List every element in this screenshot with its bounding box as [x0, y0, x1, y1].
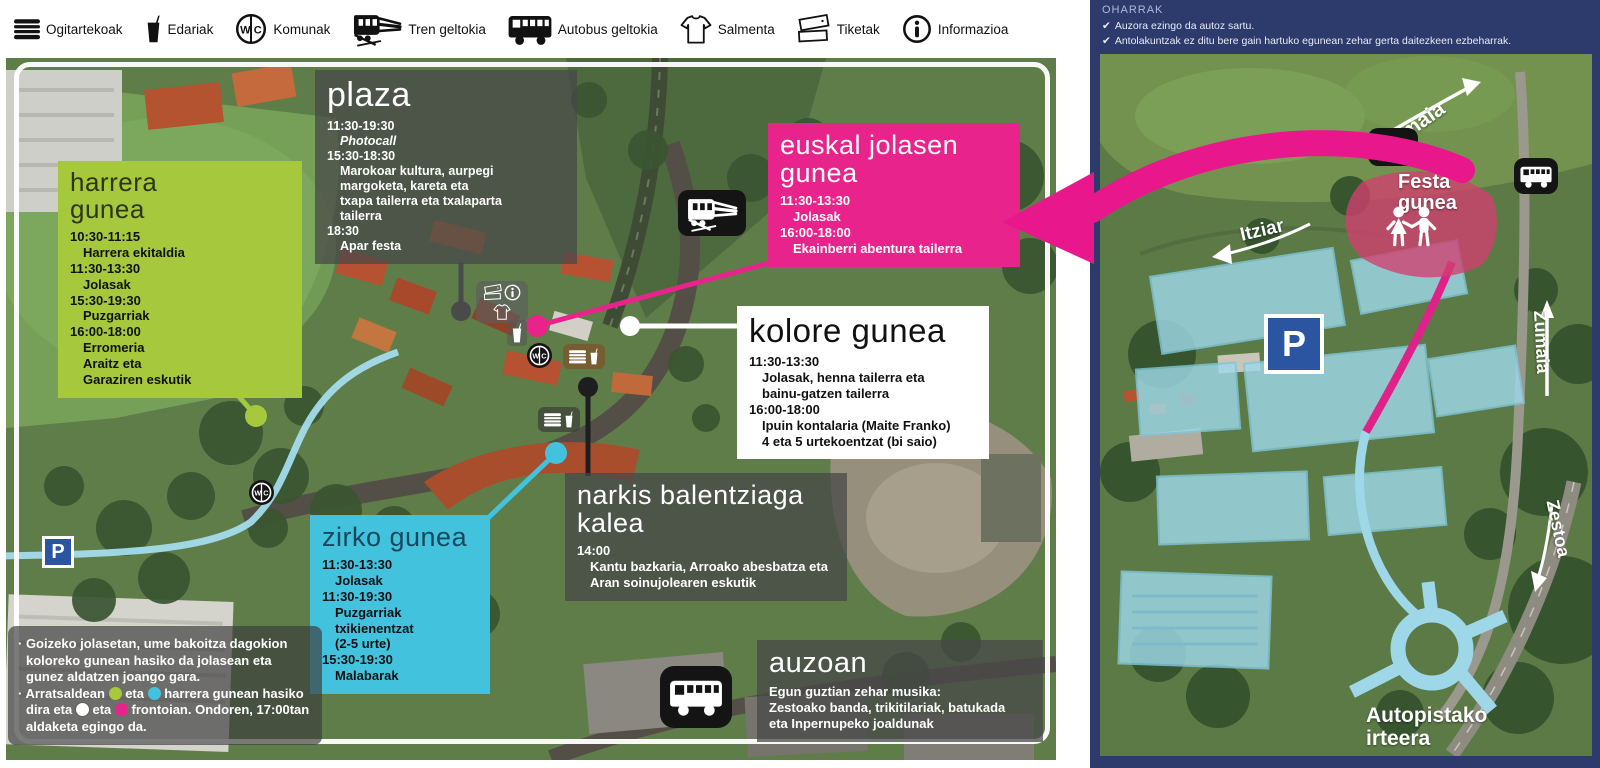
zone-box-narkis-balentziaga-kalea: narkis balentziaga kalea 14:00 Kantu baz… — [565, 473, 847, 601]
wc-icon — [251, 482, 272, 503]
schedule-line: margoketa, kareta eta — [327, 179, 565, 194]
schedule-line: tailerra — [327, 209, 565, 224]
legend-item-sales: Salmenta — [680, 15, 775, 44]
schedule-line: bainu-gatzen tailerra — [749, 386, 977, 402]
zone-box-plaza: plaza 11:30-19:30 Photocall 15:30-18:30 … — [315, 70, 577, 264]
schedule-line: 11:30-19:30 — [327, 119, 565, 134]
legend-label: Ogitartekoak — [46, 22, 123, 37]
schedule-line: Araitz eta — [70, 356, 290, 372]
schedule-line: 15:30-19:30 — [70, 293, 290, 309]
legend-label: Komunak — [273, 22, 330, 37]
schedule-line: Egun guztian zehar musika: — [769, 684, 1031, 700]
schedule-line: Jolasak, henna tailerra eta — [749, 370, 977, 386]
info-icon — [902, 14, 932, 44]
schedule-line: eta Inpernupeko joaldunak — [769, 716, 1031, 732]
schedule-line: Apar festa — [327, 239, 565, 254]
schedule-line: 11:30-13:30 — [749, 354, 977, 370]
schedule-line: 11:30-13:30 — [70, 261, 290, 277]
zone-box-harrera-gunea: harrera gunea 10:30-11:15 Harrera ekital… — [58, 161, 302, 398]
zone-title: harrera gunea — [70, 169, 200, 223]
schedule-line: Kantu bazkaria, Arroako abesbatza eta — [577, 559, 835, 575]
legend-bar: Ogitartekoak Edariak Komunak Tren geltok… — [0, 0, 1090, 58]
services-marker — [476, 281, 528, 323]
note-item: ✔Auzora ezingo da autoz sartu. — [1102, 19, 1596, 34]
schedule-line: 11:30-13:30 — [322, 557, 478, 573]
zone-title: euskal jolasen gunea — [780, 131, 1008, 187]
cyan-zone-dot — [148, 687, 161, 700]
legend-label: Informazioa — [938, 22, 1009, 37]
pink-zone-dot — [115, 703, 128, 716]
white-zone-dot — [76, 703, 89, 716]
schedule-line: Zestoako banda, trikitilariak, batukada — [769, 700, 1031, 716]
schedule-line: txapa tailerra eta txalaparta — [327, 194, 565, 209]
bus-icon — [1520, 164, 1552, 189]
color-zone-notes: · Goizeko jolasetan, ume bakoitza dagoki… — [8, 626, 322, 745]
legend-item-toilets: Komunak — [235, 13, 330, 45]
legend-item-sandwiches: Ogitartekoak — [14, 19, 123, 40]
legend-label: Salmenta — [718, 22, 775, 37]
tickets-icon — [483, 284, 503, 301]
legend-item-train-station: Tren geltokia — [352, 11, 486, 47]
train-icon — [1374, 133, 1412, 161]
schedule-line: (2-5 urte) — [322, 636, 478, 652]
note-morning: · Goizeko jolasetan, ume bakoitza dagoki… — [18, 636, 312, 686]
train-icon — [352, 11, 402, 47]
schedule-line: Malabarak — [322, 668, 478, 684]
toilets-marker — [527, 343, 552, 368]
train-icon — [686, 195, 738, 232]
schedule-line: 15:30-19:30 — [322, 652, 478, 668]
legend-item-drinks: Edariak — [145, 15, 214, 43]
zone-box-zirko-gunea: zirko gunea 11:30-13:30 Jolasak 11:30-19… — [310, 515, 490, 694]
zone-box-auzoan: auzoan Egun guztian zehar musika: Zestoa… — [757, 640, 1043, 742]
sandwich-icon — [14, 19, 40, 40]
children-icon — [1384, 204, 1440, 248]
check-icon: ✔ — [1102, 35, 1111, 47]
drink-icon — [145, 15, 162, 43]
schedule-line: Marokoar kultura, aurpegi — [327, 164, 565, 179]
legend-item-information: Informazioa — [902, 14, 1009, 44]
zone-title: auzoan — [769, 648, 1031, 678]
tshirt-icon — [680, 15, 712, 44]
schedule-line: Erromeria — [70, 340, 290, 356]
food-drinks-marker — [563, 344, 605, 369]
legend-item-bus-station: Autobus geltokia — [508, 13, 658, 46]
schedule-line: Harrera ekitaldia — [70, 245, 290, 261]
notes-title: OHARRAK — [1102, 4, 1596, 16]
sandwich-icon — [544, 413, 561, 427]
festival-map: harrera gunea 10:30-11:15 Harrera ekital… — [6, 58, 1056, 760]
schedule-line: 15:30-18:30 — [327, 149, 565, 164]
sandwich-icon — [569, 350, 586, 364]
schedule-line: 4 eta 5 urtekoentzat (bi saio) — [749, 434, 977, 450]
schedule-line: Garaziren eskutik — [70, 372, 290, 388]
zone-title: plaza — [327, 78, 565, 113]
zone-title: narkis balentziaga kalea — [577, 481, 835, 537]
tickets-icon — [797, 14, 831, 44]
tshirt-icon — [493, 304, 511, 320]
wc-icon — [529, 345, 550, 366]
legend-label: Tiketak — [837, 22, 880, 37]
overview-panel: OHARRAK ✔Auzora ezingo da autoz sartu. ✔… — [1090, 0, 1600, 768]
festival-poster: Ogitartekoak Edariak Komunak Tren geltok… — [0, 0, 1600, 768]
parking-marker: P — [42, 536, 74, 568]
schedule-line: Photocall — [327, 134, 565, 149]
drink-icon — [511, 323, 523, 343]
note-afternoon: · Arratsaldean eta harrera gunean hasiko… — [18, 686, 312, 736]
notes-block: OHARRAK ✔Auzora ezingo da autoz sartu. ✔… — [1102, 4, 1596, 49]
zone-title: zirko gunea — [322, 523, 478, 551]
schedule-line: 16:00-18:00 — [70, 324, 290, 340]
green-zone-dot — [109, 687, 122, 700]
food-drinks-marker — [538, 407, 580, 432]
schedule-line: 16:00-18:00 — [780, 225, 1008, 241]
schedule-line: 10:30-11:15 — [70, 229, 290, 245]
schedule-line: 14:00 — [577, 543, 835, 559]
zone-box-kolore-gunea: kolore gunea 11:30-13:30 Jolasak, henna … — [737, 306, 989, 459]
legend-label: Tren geltokia — [408, 22, 486, 37]
drink-icon — [589, 348, 599, 365]
wc-icon — [235, 13, 267, 45]
train-station-marker — [678, 190, 746, 236]
schedule-line: Jolasak — [322, 573, 478, 589]
toilets-marker — [249, 480, 274, 505]
drink-icon — [564, 411, 574, 428]
schedule-line: Aran soinujolearen eskutik — [577, 575, 835, 591]
schedule-line: Puzgarriak — [70, 308, 290, 324]
schedule-line: 11:30-19:30 — [322, 589, 478, 605]
area-overview-map: Zumaia Itziar Festa gunea Zumaia Zestoa … — [1100, 54, 1592, 756]
drinks-marker — [507, 320, 527, 346]
parking-marker: P — [1264, 314, 1324, 374]
bus-icon — [508, 13, 552, 46]
legend-label: Autobus geltokia — [558, 22, 658, 37]
bus-icon — [669, 677, 723, 717]
legend-label: Edariak — [168, 22, 214, 37]
info-icon — [504, 284, 521, 301]
note-item: ✔Antolakuntzak ez ditu bere gain hartuko… — [1102, 34, 1596, 49]
zone-title: kolore gunea — [749, 314, 977, 348]
schedule-line: 11:30-13:30 — [780, 193, 1008, 209]
zone-box-euskal-jolasen-gunea: euskal jolasen gunea 11:30-13:30 Jolasak… — [768, 123, 1020, 267]
schedule-line: Jolasak — [70, 277, 290, 293]
schedule-line: Ipuin kontalaria (Maite Franko) — [749, 418, 977, 434]
check-icon: ✔ — [1102, 20, 1111, 32]
train-station-marker — [1368, 128, 1418, 166]
schedule-line: 18:30 — [327, 224, 565, 239]
bus-station-marker — [1514, 158, 1558, 194]
schedule-line: Puzgarriak txikienentzat — [322, 605, 478, 637]
schedule-line: Ekainberri abentura tailerra — [780, 241, 1008, 257]
highway-exit-label: Autopistako irteera — [1366, 704, 1496, 750]
legend-item-tickets: Tiketak — [797, 14, 880, 44]
schedule-line: 16:00-18:00 — [749, 402, 977, 418]
schedule-line: Jolasak — [780, 209, 1008, 225]
road-label-zumaia-east: Zumaia — [1529, 310, 1553, 374]
bus-station-marker — [660, 666, 732, 728]
